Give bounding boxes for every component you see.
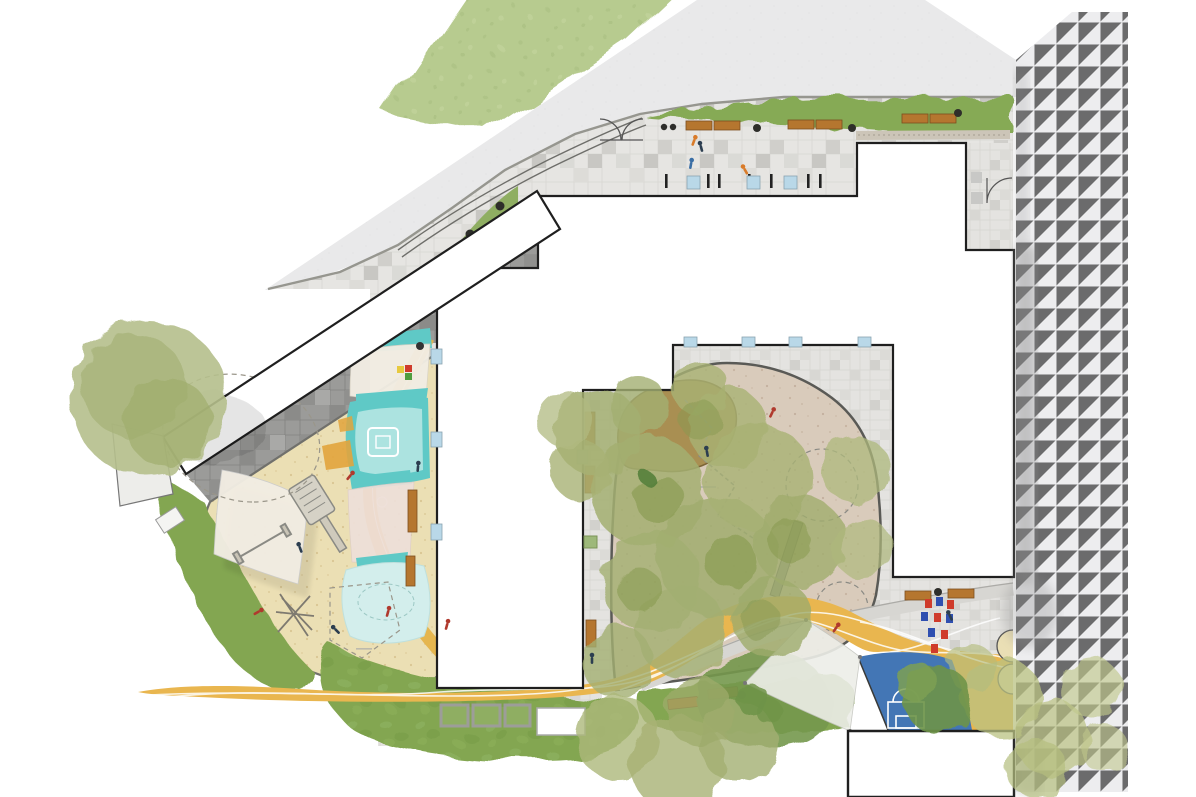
bush [639,470,653,484]
small-tree-dot [416,342,424,350]
tree-canopy [124,378,212,466]
window-gray [971,192,983,204]
wood-bench [714,121,740,130]
wood-bench [408,490,417,532]
shade-sail-pink [348,482,414,563]
wood-bench [905,591,931,600]
wood-bench [930,114,956,123]
window [789,337,802,347]
small-tree-dot [934,588,942,596]
play-tile [405,365,412,372]
splash-pool [342,563,430,644]
wood-bench [406,556,415,586]
planter [473,705,500,726]
wood-bench [788,120,814,129]
play-tile [405,373,412,380]
bush [896,662,936,702]
window [431,524,442,540]
bush [757,699,783,725]
south-building [848,731,1014,797]
window [742,337,755,347]
wood-bench [902,114,928,123]
window [684,337,697,347]
planter [505,705,530,726]
teal-sail-inner [355,407,423,474]
planter [441,705,468,726]
window [431,349,442,364]
wood-bench [686,121,712,130]
illegible-label-mark [356,648,372,650]
window-gray [971,172,982,183]
site-plan-canvas [0,0,1196,797]
site-plan-drawing [0,0,1196,797]
wood-bench [816,120,842,129]
entrance-vestibule [966,143,1013,250]
play-tile [397,366,404,373]
window [858,337,871,347]
wood-bench [948,589,974,598]
planter-box [584,536,597,548]
window [431,432,442,447]
small-tree-dot [496,202,505,211]
